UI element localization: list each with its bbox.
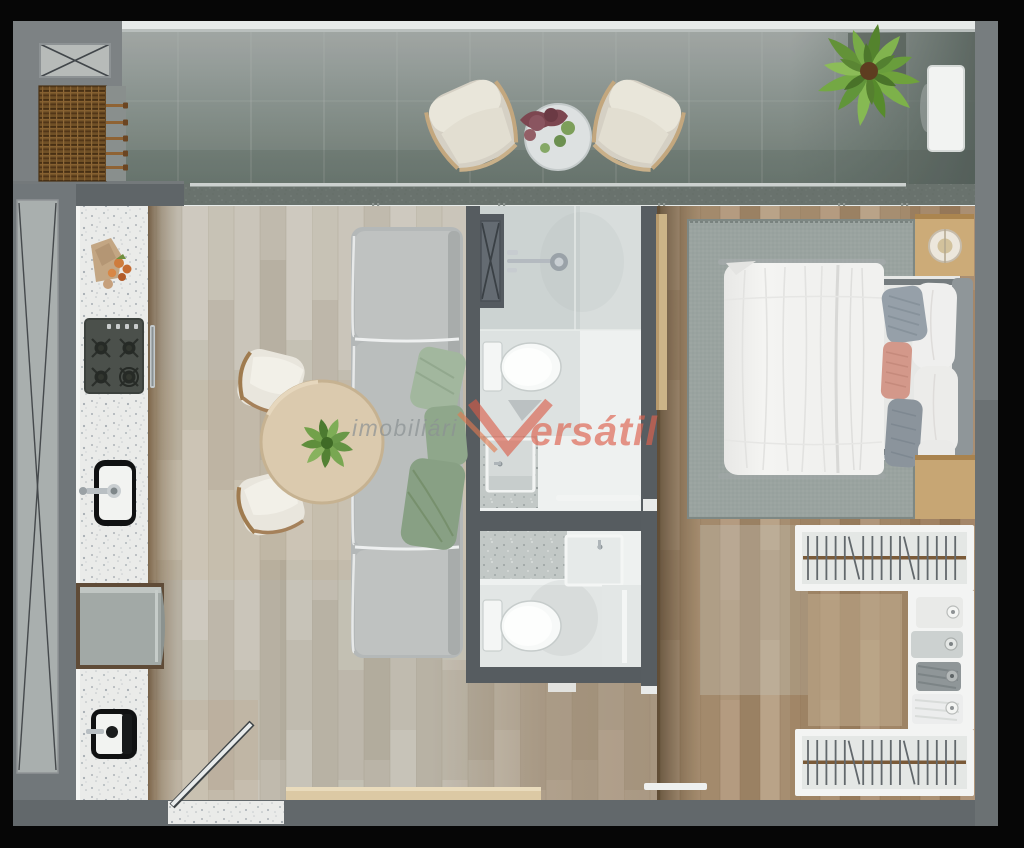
svg-text:ersátil: ersátil	[530, 408, 658, 454]
svg-text:imobiliári: imobiliári	[352, 415, 458, 441]
